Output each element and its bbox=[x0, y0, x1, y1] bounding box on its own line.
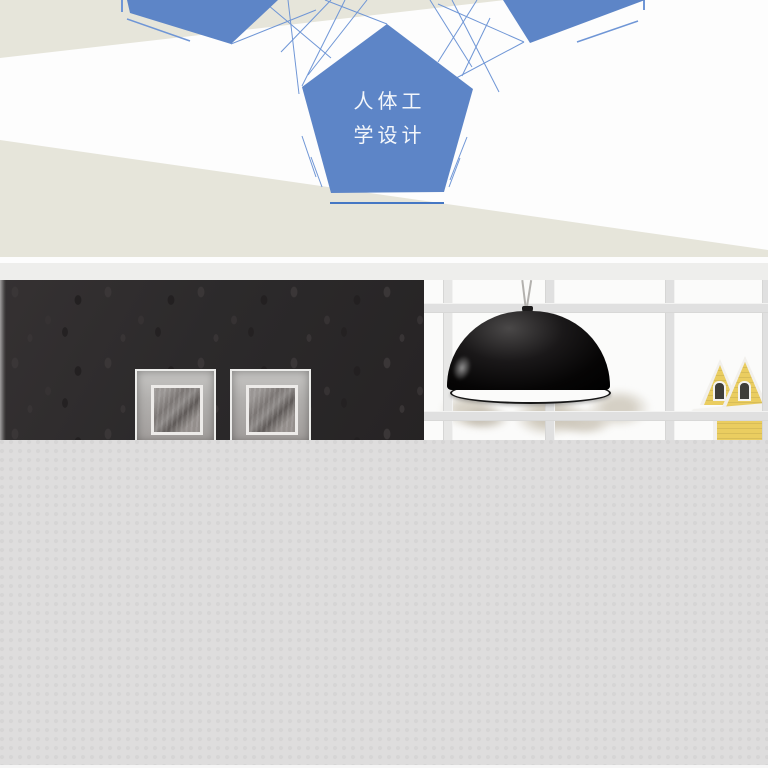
window-mullion-horizontal bbox=[424, 411, 768, 421]
picture-frame bbox=[230, 369, 311, 440]
lifestyle-photo-banner bbox=[0, 280, 768, 440]
feature-badge-line1: 人体工 bbox=[302, 84, 473, 118]
promo-page: 人体工 学设计 bbox=[0, 0, 768, 768]
empty-bottom-section bbox=[0, 440, 768, 768]
feature-hero-section: 人体工 学设计 bbox=[0, 0, 768, 263]
window-mullion-horizontal bbox=[424, 303, 768, 313]
dark-wallpaper-wall bbox=[0, 280, 432, 440]
feature-badge-text: 人体工 学设计 bbox=[302, 84, 473, 152]
lamp-highlight bbox=[449, 353, 474, 383]
feature-badge-line2: 学设计 bbox=[302, 118, 473, 152]
pendant-lamp-dome bbox=[447, 311, 610, 390]
window-scene bbox=[424, 280, 768, 440]
picture-frame bbox=[135, 369, 216, 440]
wall-left-highlight bbox=[0, 280, 6, 440]
frame-artwork bbox=[151, 385, 203, 435]
divider-strip bbox=[0, 263, 768, 280]
gable-window bbox=[738, 381, 751, 401]
gable-window bbox=[713, 381, 726, 401]
yellow-house bbox=[695, 356, 768, 440]
frame-artwork bbox=[246, 385, 298, 435]
